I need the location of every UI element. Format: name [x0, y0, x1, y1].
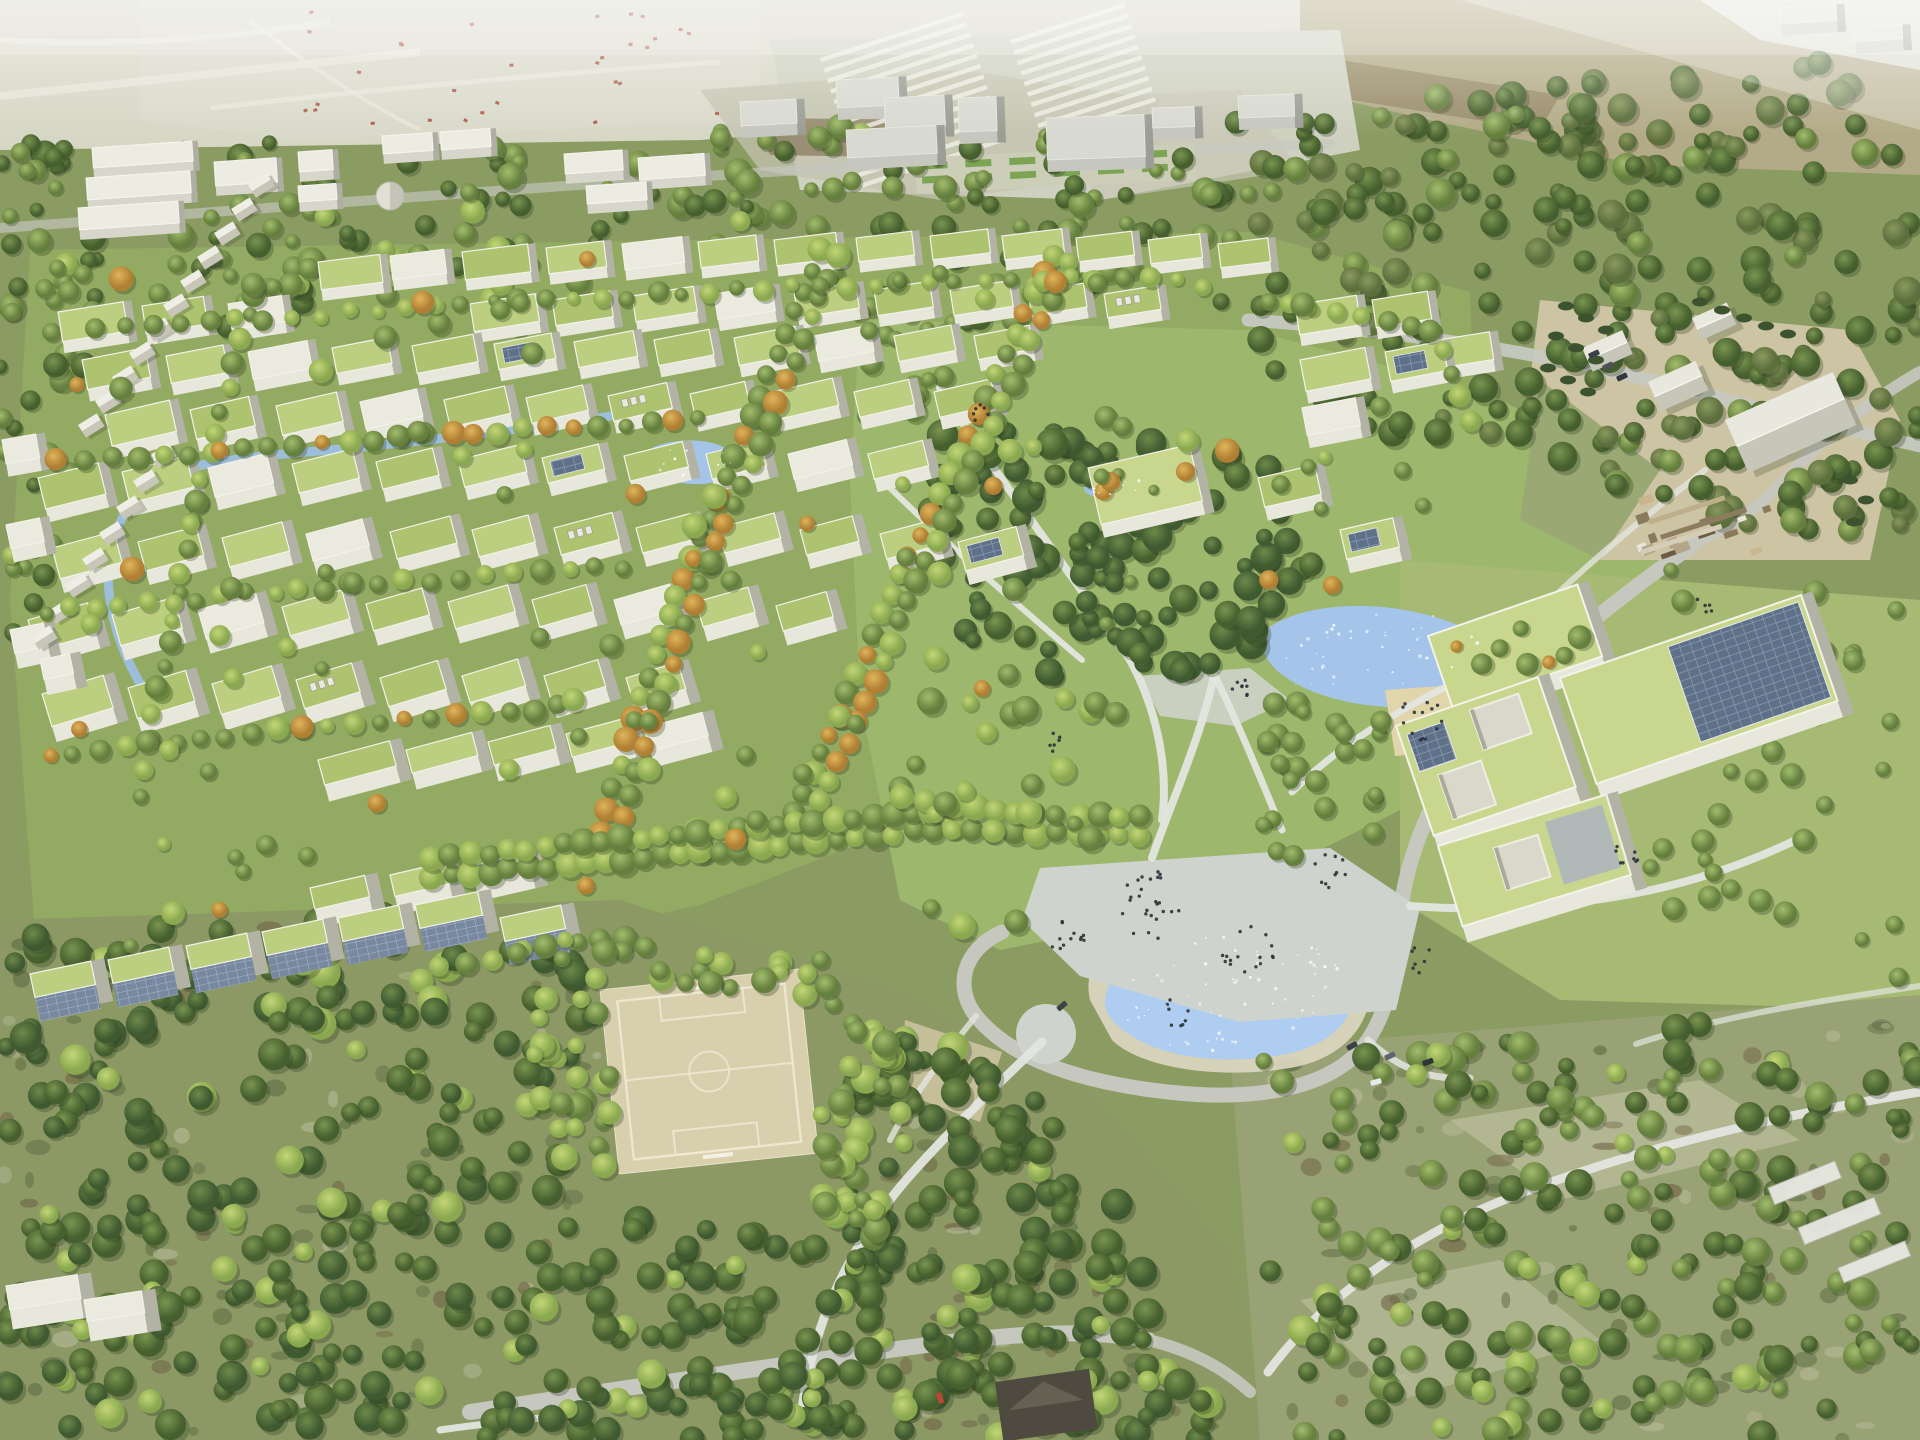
scene-svg — [0, 0, 1920, 1440]
hedge — [1846, 518, 1862, 527]
hedge — [1692, 298, 1708, 307]
hedge — [1580, 388, 1596, 397]
hedge — [1540, 364, 1556, 373]
hedge — [1780, 330, 1796, 339]
hedge — [1736, 314, 1752, 323]
hedge — [1558, 302, 1574, 311]
building-slab — [586, 181, 654, 214]
building-g — [1148, 233, 1211, 275]
hedge — [1858, 496, 1874, 505]
hedge — [1568, 344, 1584, 353]
hedge — [1714, 306, 1730, 315]
hedge — [1842, 476, 1858, 485]
building-slab — [382, 132, 440, 164]
building-w — [2, 432, 51, 476]
hedge — [1758, 322, 1774, 331]
hedge — [1578, 314, 1594, 323]
haze-layer — [0, 0, 1920, 135]
building-w — [390, 248, 456, 290]
hedge — [1548, 332, 1564, 341]
hedge — [1560, 376, 1576, 385]
sports-field — [600, 969, 818, 1174]
hedge — [1598, 326, 1614, 335]
masterplan-aerial-render — [0, 0, 1920, 1440]
building-slab — [298, 183, 344, 212]
building-g2 — [1218, 237, 1279, 279]
building-slab — [298, 149, 340, 182]
building-slab — [564, 150, 630, 184]
